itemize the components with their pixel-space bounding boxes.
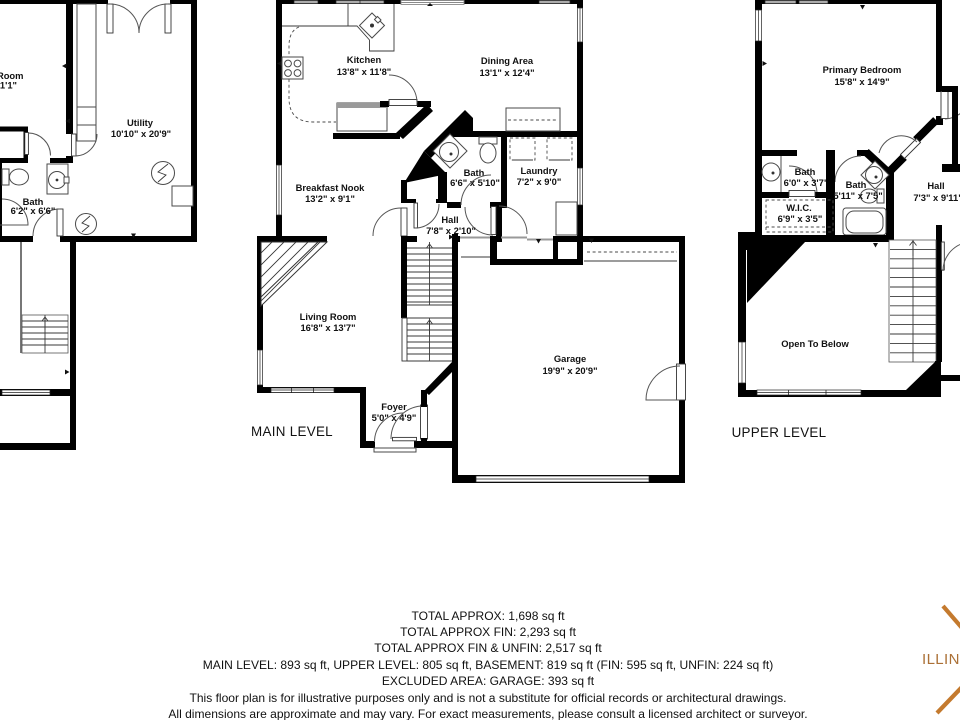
- svg-text:Breakfast Nook: Breakfast Nook: [296, 182, 366, 193]
- svg-text:15'8" x 14'9": 15'8" x 14'9": [834, 76, 889, 87]
- svg-text:6'2" x 6'6": 6'2" x 6'6": [11, 205, 56, 216]
- svg-text:W.I.C.: W.I.C.: [786, 202, 812, 213]
- svg-text:Garage: Garage: [554, 353, 586, 364]
- svg-text:EXCLUDED AREA: GARAGE: 393 sq: EXCLUDED AREA: GARAGE: 393 sq ft: [382, 674, 595, 688]
- svg-text:13'1" x 12'4": 13'1" x 12'4": [479, 67, 534, 78]
- svg-text:Primary Bedroom: Primary Bedroom: [823, 64, 902, 75]
- svg-text:ILLINOIS: ILLINOIS: [922, 651, 960, 668]
- svg-text:UPPER LEVEL: UPPER LEVEL: [732, 425, 827, 440]
- svg-text:Utility: Utility: [127, 117, 154, 128]
- svg-text:10'10" x 20'9": 10'10" x 20'9": [111, 128, 171, 139]
- svg-text:6'0" x 3'7": 6'0" x 3'7": [784, 177, 829, 188]
- svg-text:Living Room: Living Room: [300, 311, 357, 322]
- svg-text:MAIN LEVEL: MAIN LEVEL: [251, 424, 333, 439]
- svg-text:Hall: Hall: [441, 214, 458, 225]
- svg-text:TOTAL APPROX FIN & UNFIN: 2,51: TOTAL APPROX FIN & UNFIN: 2,517 sq ft: [374, 641, 602, 655]
- svg-text:Bath: Bath: [795, 166, 816, 177]
- svg-text:Laundry: Laundry: [521, 165, 559, 176]
- svg-text:7'8" x 2'10": 7'8" x 2'10": [426, 225, 476, 236]
- svg-text:6'9" x 3'5": 6'9" x 3'5": [778, 213, 823, 224]
- svg-text:Dining Area: Dining Area: [481, 55, 534, 66]
- svg-text:Kitchen: Kitchen: [347, 54, 382, 65]
- svg-text:13'2" x 9'1": 13'2" x 9'1": [305, 193, 355, 204]
- svg-text:5'0" x 4'9": 5'0" x 4'9": [372, 412, 417, 423]
- svg-text:7'2" x 9'0": 7'2" x 9'0": [517, 176, 562, 187]
- svg-text:7'3" x 9'11": 7'3" x 9'11": [913, 192, 960, 203]
- svg-text:16'8" x 13'7": 16'8" x 13'7": [300, 322, 355, 333]
- svg-text:6'6" x 5'10": 6'6" x 5'10": [450, 177, 500, 188]
- svg-text:MAIN LEVEL: 893 sq ft, UPPER L: MAIN LEVEL: 893 sq ft, UPPER LEVEL: 805 …: [203, 658, 773, 672]
- svg-text:1'1": 1'1": [0, 80, 17, 91]
- svg-text:13'8" x 11'8": 13'8" x 11'8": [337, 66, 392, 77]
- svg-text:TOTAL APPROX FIN: 2,293 sq ft: TOTAL APPROX FIN: 2,293 sq ft: [400, 625, 577, 639]
- svg-text:Foyer: Foyer: [381, 401, 407, 412]
- svg-text:This floor plan is for illustr: This floor plan is for illustrative purp…: [189, 691, 786, 705]
- svg-text:19'9" x 20'9": 19'9" x 20'9": [542, 365, 597, 376]
- svg-text:All dimensions are approximate: All dimensions are approximate and may v…: [168, 707, 807, 720]
- svg-text:Hall: Hall: [927, 180, 944, 191]
- svg-text:TOTAL APPROX: 1,698 sq ft: TOTAL APPROX: 1,698 sq ft: [411, 609, 565, 623]
- svg-text:Bath: Bath: [846, 179, 867, 190]
- svg-text:Open To Below: Open To Below: [781, 338, 849, 349]
- svg-text:5'11" x 7'5": 5'11" x 7'5": [833, 190, 882, 201]
